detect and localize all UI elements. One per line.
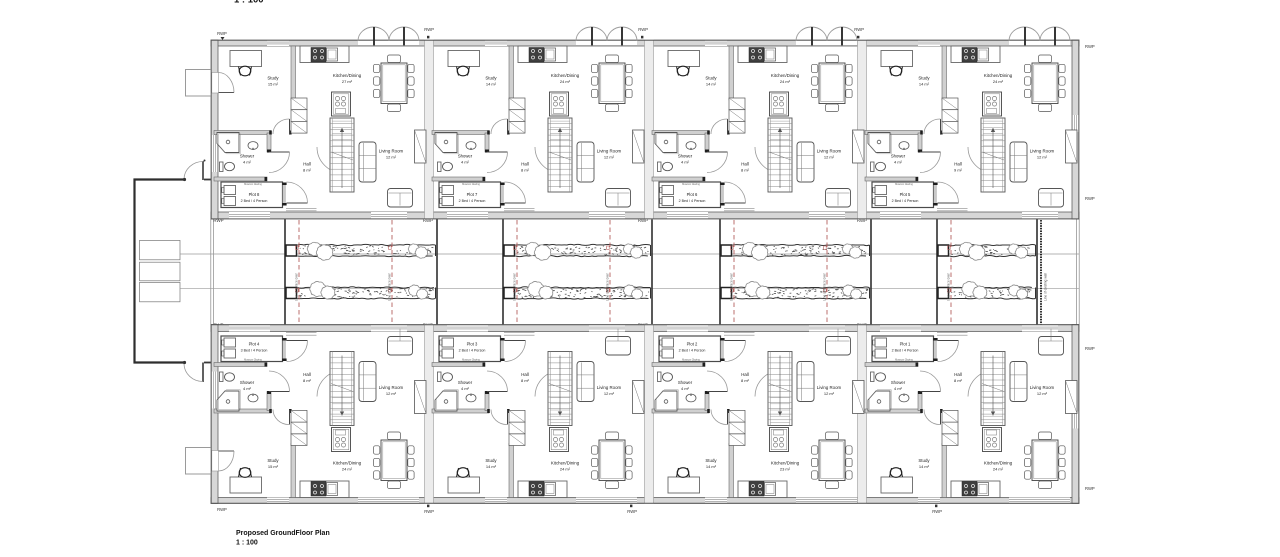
svg-text:24 m²: 24 m²	[993, 79, 1004, 84]
svg-text:RWP: RWP	[932, 509, 942, 514]
svg-text:Kitchen/Dining: Kitchen/Dining	[984, 460, 1013, 465]
svg-text:8 m²: 8 m²	[521, 167, 530, 172]
svg-text:Mowcon Glazing: Mowcon Glazing	[244, 359, 262, 362]
svg-text:Kitchen/Dining: Kitchen/Dining	[771, 460, 800, 465]
svg-text:8 m²: 8 m²	[954, 378, 963, 383]
svg-text:Study: Study	[918, 75, 930, 80]
svg-text:Line of terrace over: Line of terrace over	[388, 272, 392, 300]
svg-text:4 m²: 4 m²	[461, 386, 470, 391]
svg-text:2 Bed / 4 Person: 2 Bed / 4 Person	[241, 199, 268, 203]
svg-text:Plot 5: Plot 5	[900, 192, 911, 197]
svg-text:12 m²: 12 m²	[824, 154, 835, 159]
svg-text:Study: Study	[918, 458, 930, 463]
svg-text:14 m²: 14 m²	[486, 81, 497, 86]
svg-text:Mowcon Glazing: Mowcon Glazing	[462, 359, 480, 362]
svg-text:Plot 6: Plot 6	[687, 192, 698, 197]
svg-text:15 m²: 15 m²	[268, 81, 279, 86]
svg-text:12 m²: 12 m²	[824, 391, 835, 396]
svg-text:24 m²: 24 m²	[993, 466, 1004, 471]
svg-text:15 m²: 15 m²	[268, 464, 279, 469]
svg-text:Living Room: Living Room	[817, 385, 842, 390]
svg-text:Kitchen/Dining: Kitchen/Dining	[984, 73, 1013, 78]
svg-text:24 m²: 24 m²	[560, 79, 571, 84]
svg-text:RWP: RWP	[424, 27, 434, 32]
svg-text:23 m²: 23 m²	[780, 466, 791, 471]
svg-text:2 Bed / 4 Person: 2 Bed / 4 Person	[679, 199, 706, 203]
svg-text:Study: Study	[267, 75, 279, 80]
svg-text:8 m²: 8 m²	[741, 378, 750, 383]
svg-text:Line of terrace over: Line of terrace over	[947, 272, 951, 300]
svg-text:Plot 3: Plot 3	[467, 341, 478, 346]
svg-text:12 m²: 12 m²	[604, 154, 615, 159]
svg-text:Line of terrace over: Line of terrace over	[823, 272, 827, 300]
svg-text:Living Room: Living Room	[597, 148, 622, 153]
svg-text:Plot 1: Plot 1	[900, 341, 911, 346]
svg-text:Hall: Hall	[741, 161, 749, 166]
svg-text:Shower: Shower	[891, 380, 906, 385]
svg-text:12 m²: 12 m²	[386, 391, 397, 396]
svg-text:Plot 4: Plot 4	[249, 341, 260, 346]
svg-text:Hall: Hall	[521, 372, 529, 377]
svg-text:Shower: Shower	[891, 153, 906, 158]
svg-text:Plot 7: Plot 7	[467, 192, 478, 197]
svg-text:Hall: Hall	[303, 161, 311, 166]
svg-text:Proposed GroundFloor Plan: Proposed GroundFloor Plan	[236, 530, 330, 537]
svg-text:Line of terrace over: Line of terrace over	[606, 272, 610, 300]
svg-text:RWP: RWP	[217, 507, 227, 512]
svg-text:4 m²: 4 m²	[681, 386, 690, 391]
svg-text:Living Room: Living Room	[597, 385, 622, 390]
svg-text:Shower: Shower	[678, 380, 693, 385]
svg-text:Kitchen/Dining: Kitchen/Dining	[333, 73, 362, 78]
svg-text:14 m²: 14 m²	[919, 81, 930, 86]
svg-text:Hall: Hall	[954, 372, 962, 377]
svg-text:12 m²: 12 m²	[386, 154, 397, 159]
svg-text:Hall: Hall	[741, 372, 749, 377]
svg-text:24 m²: 24 m²	[780, 79, 791, 84]
svg-text:RWP: RWP	[1085, 44, 1095, 49]
svg-text:Shower: Shower	[458, 153, 473, 158]
svg-text:Plot 8: Plot 8	[249, 192, 260, 197]
svg-text:Mowcon Glazing: Mowcon Glazing	[244, 183, 262, 186]
svg-text:Study: Study	[705, 458, 717, 463]
svg-text:Shower: Shower	[678, 153, 693, 158]
svg-text:12 m²: 12 m²	[604, 391, 615, 396]
svg-text:2 Bed / 4 Person: 2 Bed / 4 Person	[679, 348, 706, 352]
svg-text:Living Room: Living Room	[1030, 385, 1055, 390]
svg-text:Living Room: Living Room	[817, 148, 842, 153]
svg-text:14 m²: 14 m²	[706, 464, 717, 469]
svg-text:Line of existing wall: Line of existing wall	[1044, 273, 1048, 301]
svg-text:Mowcon Glazing: Mowcon Glazing	[895, 359, 913, 362]
svg-text:Hall: Hall	[521, 161, 529, 166]
svg-text:RWP: RWP	[1085, 486, 1095, 491]
svg-text:4 m²: 4 m²	[243, 386, 252, 391]
svg-text:Study: Study	[485, 458, 497, 463]
svg-text:4 m²: 4 m²	[243, 159, 252, 164]
svg-text:Kitchen/Dining: Kitchen/Dining	[333, 460, 362, 465]
svg-text:RWP: RWP	[217, 31, 227, 36]
svg-text:RWP: RWP	[1085, 346, 1095, 351]
svg-text:4 m²: 4 m²	[461, 159, 470, 164]
svg-text:Mowcon Glazing: Mowcon Glazing	[895, 183, 913, 186]
svg-text:3 Bed / 4 Person: 3 Bed / 4 Person	[241, 348, 268, 352]
svg-text:Kitchen/Dining: Kitchen/Dining	[771, 73, 800, 78]
svg-text:1 : 100: 1 : 100	[236, 540, 258, 547]
svg-text:Study: Study	[705, 75, 717, 80]
svg-text:2 Bed / 4 Person: 2 Bed / 4 Person	[892, 348, 919, 352]
svg-text:8 m²: 8 m²	[303, 167, 312, 172]
svg-text:Mowcon Glazing: Mowcon Glazing	[682, 183, 700, 186]
svg-text:12 m²: 12 m²	[1037, 391, 1048, 396]
svg-text:RWP: RWP	[1085, 196, 1095, 201]
svg-text:14 m²: 14 m²	[486, 464, 497, 469]
svg-text:14 m²: 14 m²	[919, 464, 930, 469]
svg-text:Line of terrace over: Line of terrace over	[513, 272, 517, 300]
svg-text:8 m²: 8 m²	[741, 167, 750, 172]
svg-text:Study: Study	[485, 75, 497, 80]
svg-text:1 : 100: 1 : 100	[234, 0, 264, 6]
svg-text:8 m²: 8 m²	[521, 378, 530, 383]
svg-text:Hall: Hall	[303, 372, 311, 377]
svg-text:Hall: Hall	[954, 161, 962, 166]
svg-text:2 Bed / 4 Person: 2 Bed / 4 Person	[459, 199, 486, 203]
svg-text:Living Room: Living Room	[379, 385, 404, 390]
svg-text:Plot 2: Plot 2	[687, 341, 698, 346]
svg-text:Kitchen/Dining: Kitchen/Dining	[551, 460, 580, 465]
svg-text:RWP: RWP	[638, 27, 648, 32]
svg-text:Shower: Shower	[240, 380, 255, 385]
svg-text:RWP: RWP	[424, 509, 434, 514]
svg-text:4 m²: 4 m²	[894, 386, 903, 391]
svg-text:24 m²: 24 m²	[342, 466, 353, 471]
svg-text:Shower: Shower	[240, 153, 255, 158]
svg-text:Study: Study	[267, 458, 279, 463]
svg-text:4 m²: 4 m²	[681, 159, 690, 164]
svg-text:RWP: RWP	[854, 27, 864, 32]
svg-text:9 m²: 9 m²	[954, 167, 963, 172]
svg-text:8 m²: 8 m²	[303, 378, 312, 383]
svg-text:Line of terrace over: Line of terrace over	[730, 272, 734, 300]
svg-text:27 m²: 27 m²	[342, 79, 353, 84]
svg-text:24 m²: 24 m²	[560, 466, 571, 471]
svg-text:Living Room: Living Room	[1030, 148, 1055, 153]
svg-text:2 Bed / 4 Person: 2 Bed / 4 Person	[459, 348, 486, 352]
svg-text:2 Bed / 4 Person: 2 Bed / 4 Person	[892, 199, 919, 203]
svg-text:Line of terrace over: Line of terrace over	[295, 272, 299, 300]
svg-text:Living Room: Living Room	[379, 148, 404, 153]
svg-text:Mowcon Glazing: Mowcon Glazing	[682, 359, 700, 362]
svg-text:Mowcon Glazing: Mowcon Glazing	[462, 183, 480, 186]
svg-text:14 m²: 14 m²	[706, 81, 717, 86]
svg-text:4 m²: 4 m²	[894, 159, 903, 164]
svg-text:Kitchen/Dining: Kitchen/Dining	[551, 73, 580, 78]
svg-text:12 m²: 12 m²	[1037, 154, 1048, 159]
svg-text:Shower: Shower	[458, 380, 473, 385]
svg-text:RWP: RWP	[627, 509, 637, 514]
